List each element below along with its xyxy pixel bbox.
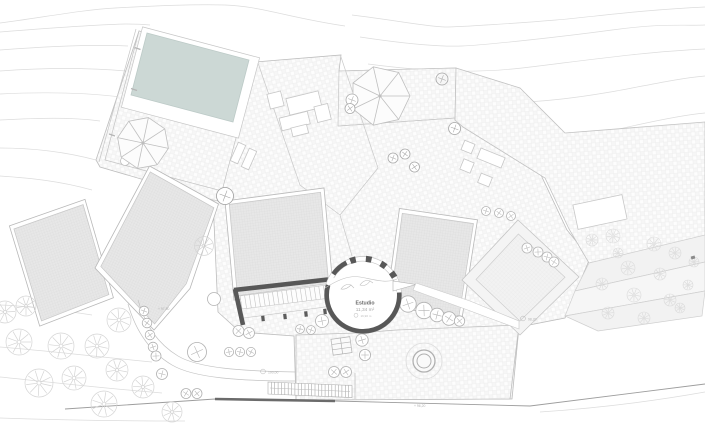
svg-text:98,20: 98,20 — [528, 318, 537, 322]
svg-text:100,00: 100,00 — [268, 371, 278, 375]
svg-text:+ 96,20: + 96,20 — [414, 404, 426, 408]
svg-text:16,90 m: 16,90 m — [361, 314, 372, 318]
svg-text:Estudio: Estudio — [355, 301, 374, 307]
svg-text:11,34 m²: 11,34 m² — [356, 307, 375, 313]
svg-text:+ 97,50: + 97,50 — [158, 307, 170, 311]
